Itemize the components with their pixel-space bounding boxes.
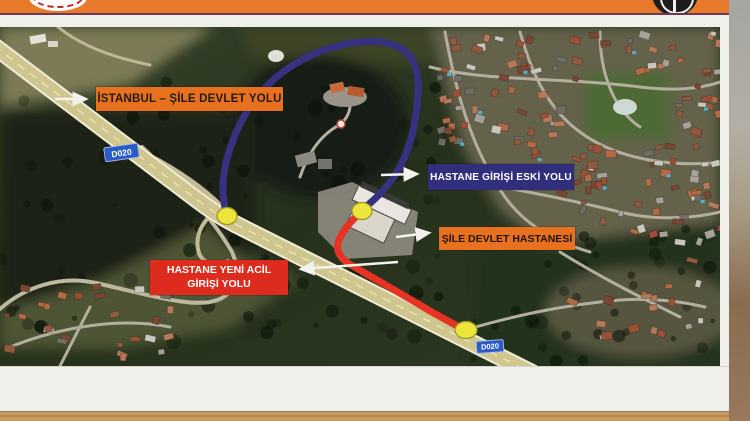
junction-dot [217, 208, 237, 225]
junction-dot [455, 322, 477, 339]
old-entrance-label: HASTANE GİRİŞİ ESKİ YOLU [428, 164, 574, 190]
hospital-label: ŞİLE DEVLET HASTANESİ [439, 227, 575, 250]
road-badge-d020-lower: D020 [476, 339, 505, 354]
satellite-map-canvas [0, 27, 720, 366]
new-emergency-label-line1: HASTANE YENİ ACİL [167, 264, 271, 278]
board-white-strip [0, 15, 729, 27]
arrow-icon [381, 174, 416, 175]
board-bottom-margin [0, 366, 729, 412]
satellite-map [0, 27, 720, 366]
highways-directorate-emblem-icon [29, 0, 87, 11]
new-emergency-label: HASTANE YENİ ACİL GİRİŞİ YOLU [150, 260, 288, 295]
park-pond [613, 99, 637, 115]
background-ground [729, 0, 750, 421]
new-emergency-label-line2: GİRİŞİ YOLU [187, 278, 250, 292]
water-tank [268, 50, 284, 62]
municipality-emblem-icon [652, 0, 698, 15]
board-edge [720, 0, 729, 411]
junction-dot [352, 203, 372, 220]
wooden-support-plank [0, 411, 729, 421]
board-header-bar [0, 0, 729, 15]
highway-label: İSTANBUL – ŞİLE DEVLET YOLU [96, 87, 283, 111]
sign-board-photo: İSTANBUL – ŞİLE DEVLET YOLU HASTANE GİRİ… [0, 0, 750, 421]
